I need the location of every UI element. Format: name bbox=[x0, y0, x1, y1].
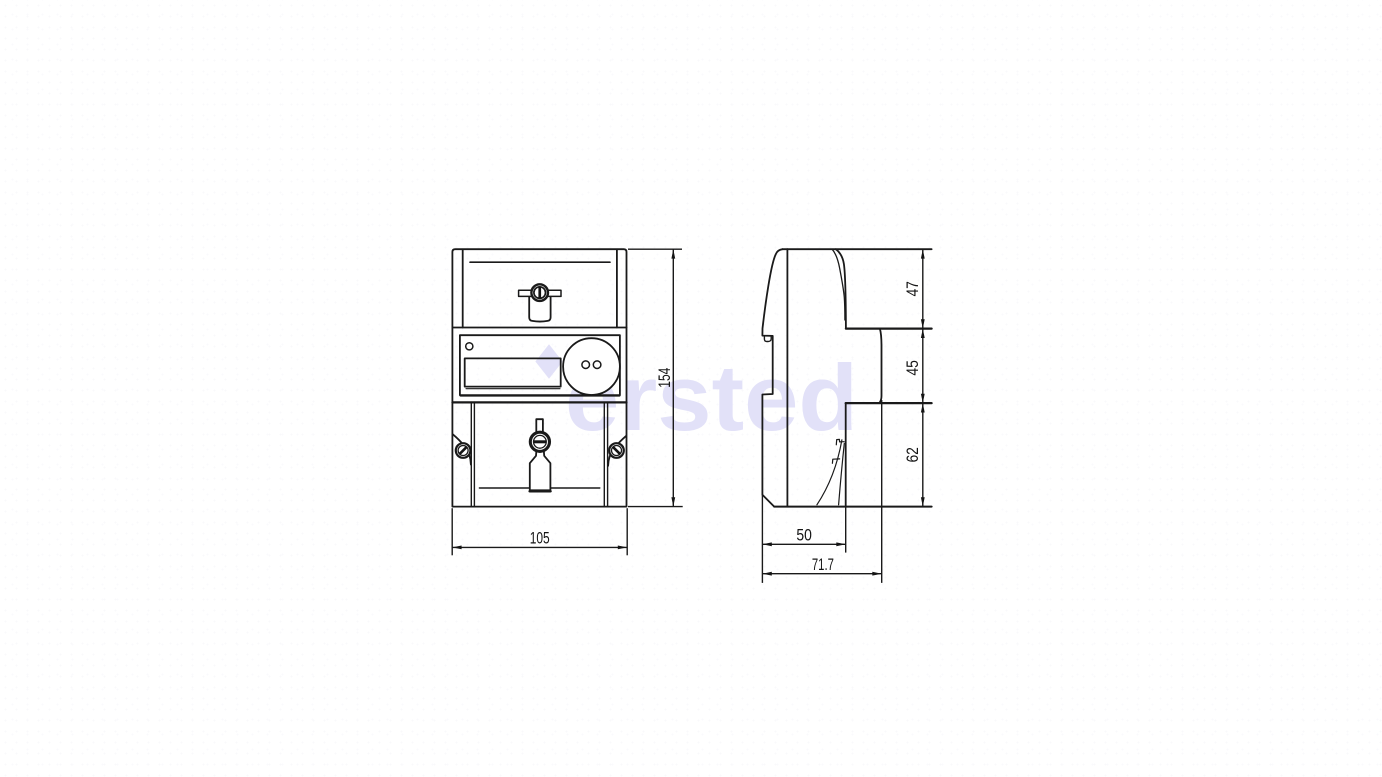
svg-text:154: 154 bbox=[655, 368, 674, 388]
svg-text:71.7: 71.7 bbox=[812, 555, 834, 574]
svg-text:50: 50 bbox=[796, 526, 812, 545]
svg-text:62: 62 bbox=[903, 447, 922, 463]
svg-text:45: 45 bbox=[903, 360, 922, 376]
svg-text:105: 105 bbox=[530, 529, 550, 548]
svg-text:47: 47 bbox=[903, 281, 922, 297]
